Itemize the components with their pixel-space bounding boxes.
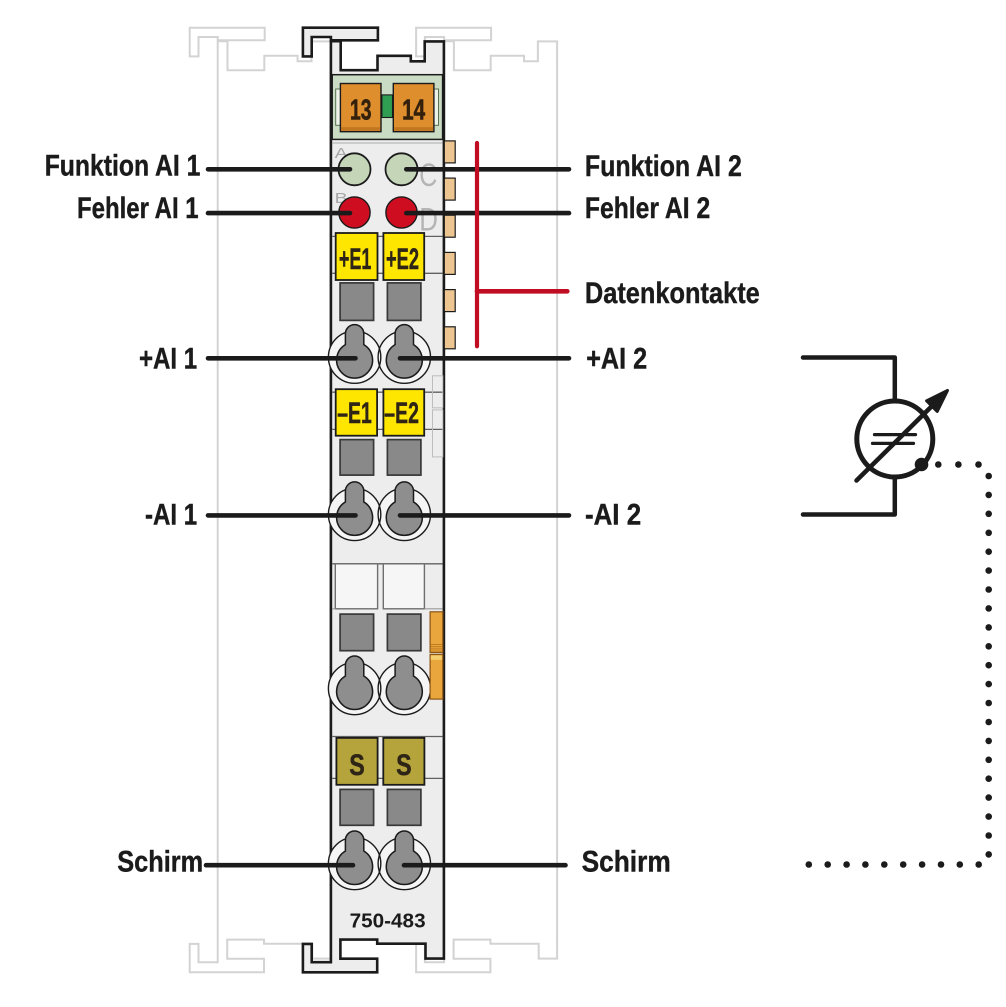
svg-text:Fehler AI 1: Fehler AI 1: [77, 192, 199, 225]
svg-text:750-483: 750-483: [350, 910, 426, 933]
svg-text:Schirm: Schirm: [117, 846, 203, 879]
svg-text:+AI 1: +AI 1: [139, 343, 197, 376]
svg-text:Funktion AI 1: Funktion AI 1: [45, 149, 201, 182]
svg-text:13: 13: [350, 95, 372, 127]
svg-text:-AI 2: -AI 2: [585, 499, 641, 532]
svg-text:S: S: [396, 749, 412, 782]
svg-text:Datenkontakte: Datenkontakte: [585, 277, 760, 310]
svg-text:Fehler AI 2: Fehler AI 2: [585, 192, 710, 225]
svg-text:–E2: –E2: [384, 397, 419, 430]
svg-text:S: S: [349, 749, 365, 782]
svg-text:+E2: +E2: [386, 243, 419, 276]
svg-text:C: C: [419, 157, 437, 193]
svg-text:-AI 1: -AI 1: [145, 499, 197, 532]
svg-text:Funktion AI 2: Funktion AI 2: [585, 150, 742, 183]
svg-text:+AI 2: +AI 2: [586, 343, 647, 376]
svg-text:+E1: +E1: [339, 243, 372, 276]
svg-text:14: 14: [402, 95, 425, 127]
svg-text:–E1: –E1: [337, 397, 372, 430]
svg-text:Schirm: Schirm: [582, 846, 671, 879]
